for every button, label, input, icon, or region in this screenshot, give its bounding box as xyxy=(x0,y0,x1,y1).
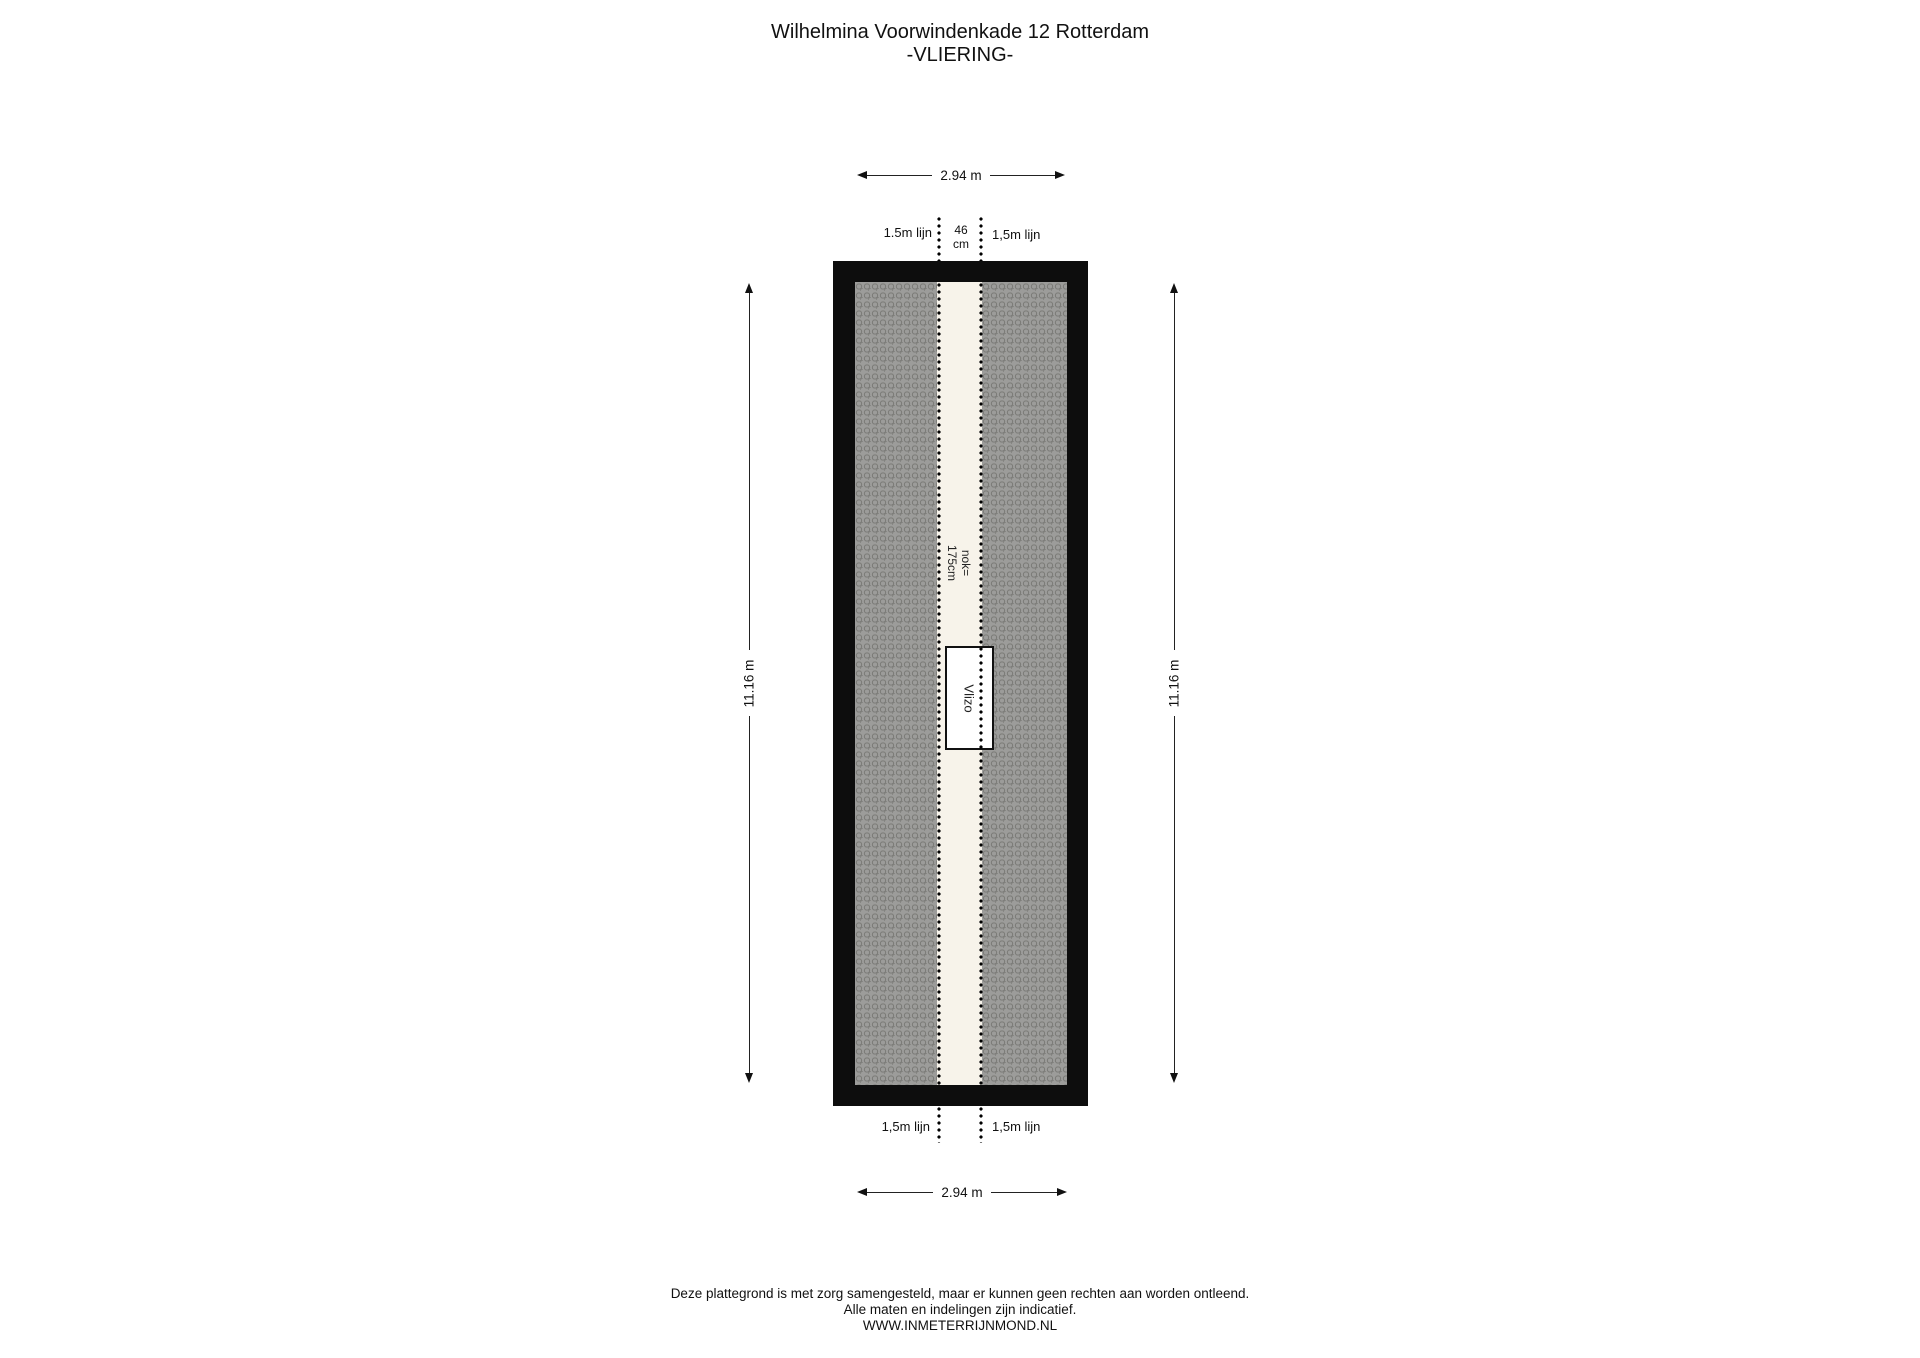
height-line-dotted-bottom-right xyxy=(979,1106,983,1143)
arrowhead-right-icon xyxy=(1057,1188,1067,1196)
gap-width-unit: cm xyxy=(941,237,981,251)
ridge-height-line1: nok= xyxy=(959,545,973,581)
dimension-line xyxy=(1174,716,1175,1073)
height-line-dotted-inner-left xyxy=(937,282,941,1085)
website-url: WWW.INMETERRIJNMOND.NL xyxy=(0,1318,1920,1334)
roof-slope-hatch-left xyxy=(855,282,937,1085)
top-right-15m-line-label: 1,5m lijn xyxy=(992,227,1040,242)
vlizo-label: Vlizo xyxy=(962,684,977,712)
roof-slope-hatch-right xyxy=(982,282,1067,1085)
attic-floor: nok= 175cm Vlizo xyxy=(855,282,1067,1085)
arrowhead-right-icon xyxy=(1055,171,1065,179)
dimension-line xyxy=(867,1192,933,1193)
ridge-gap-width-label: 46 cm xyxy=(941,223,981,251)
arrowhead-down-icon xyxy=(1170,1073,1178,1083)
height-line-dotted-bottom-left xyxy=(937,1106,941,1143)
height-line-dotted-inner-right xyxy=(979,282,983,1085)
bottom-right-15m-line-label: 1,5m lijn xyxy=(992,1119,1040,1134)
gap-width-value: 46 xyxy=(941,223,981,237)
dimension-right-height-value: 11.16 m xyxy=(1167,659,1182,707)
dimension-line xyxy=(749,293,750,650)
dimension-right-height: 11.16 m xyxy=(1167,283,1181,1083)
dimension-line xyxy=(991,1192,1057,1193)
attic-plan-outline: nok= 175cm Vlizo xyxy=(833,261,1088,1106)
arrowhead-down-icon xyxy=(745,1073,753,1083)
dimension-bottom-width: 2.94 m xyxy=(857,1184,1067,1200)
bottom-left-15m-line-label: 1,5m lijn xyxy=(828,1119,930,1134)
dimension-bottom-width-value: 2.94 m xyxy=(933,1185,990,1200)
arrowhead-up-icon xyxy=(745,283,753,293)
arrowhead-left-icon xyxy=(857,171,867,179)
arrowhead-up-icon xyxy=(1170,283,1178,293)
disclaimer: Deze plattegrond is met zorg samengestel… xyxy=(0,1286,1920,1334)
disclaimer-line2: Alle maten en indelingen zijn indicatief… xyxy=(0,1302,1920,1318)
ridge-height-label: nok= 175cm xyxy=(945,545,973,581)
vlizo-hatch-box: Vlizo xyxy=(945,646,994,750)
height-line-dotted-top-left xyxy=(937,216,941,261)
page-title: Wilhelmina Voorwindenkade 12 Rotterdam -… xyxy=(0,21,1920,67)
dimension-left-height: 11.16 m xyxy=(742,283,756,1083)
dimension-top-width-value: 2.94 m xyxy=(932,168,989,183)
height-line-dotted-top-right xyxy=(979,216,983,261)
disclaimer-line1: Deze plattegrond is met zorg samengestel… xyxy=(0,1286,1920,1302)
ridge-height-line2: 175cm xyxy=(945,545,959,581)
arrowhead-left-icon xyxy=(857,1188,867,1196)
floor-subtitle: -VLIERING- xyxy=(0,44,1920,67)
dimension-line xyxy=(990,175,1055,176)
address-title: Wilhelmina Voorwindenkade 12 Rotterdam xyxy=(0,21,1920,44)
dimension-line xyxy=(867,175,932,176)
top-left-15m-line-label: 1.5m lijn xyxy=(830,225,932,240)
dimension-top-width: 2.94 m xyxy=(857,167,1065,183)
floorplan-page: Wilhelmina Voorwindenkade 12 Rotterdam -… xyxy=(0,0,1920,1358)
dimension-line xyxy=(1174,293,1175,650)
dimension-line xyxy=(749,716,750,1073)
dimension-left-height-value: 11.16 m xyxy=(742,659,757,707)
